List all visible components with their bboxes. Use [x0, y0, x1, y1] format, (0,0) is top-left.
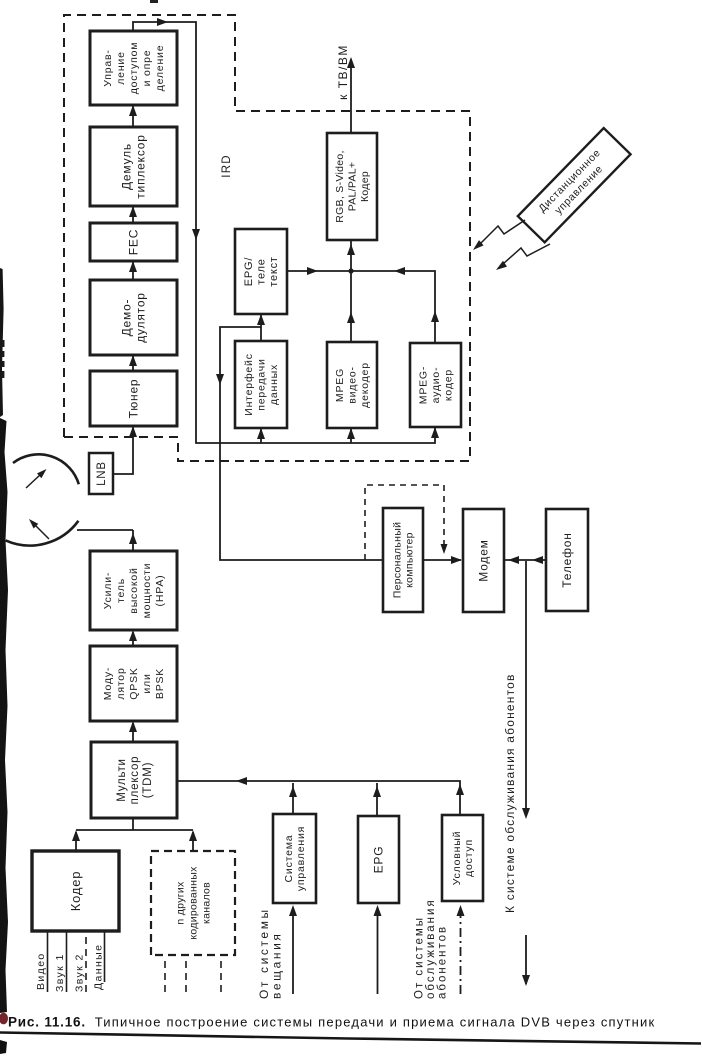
svg-text:Рис. 11.16. Типичное построени: Рис. 11.16. Типичное построение системы … [8, 1015, 655, 1030]
